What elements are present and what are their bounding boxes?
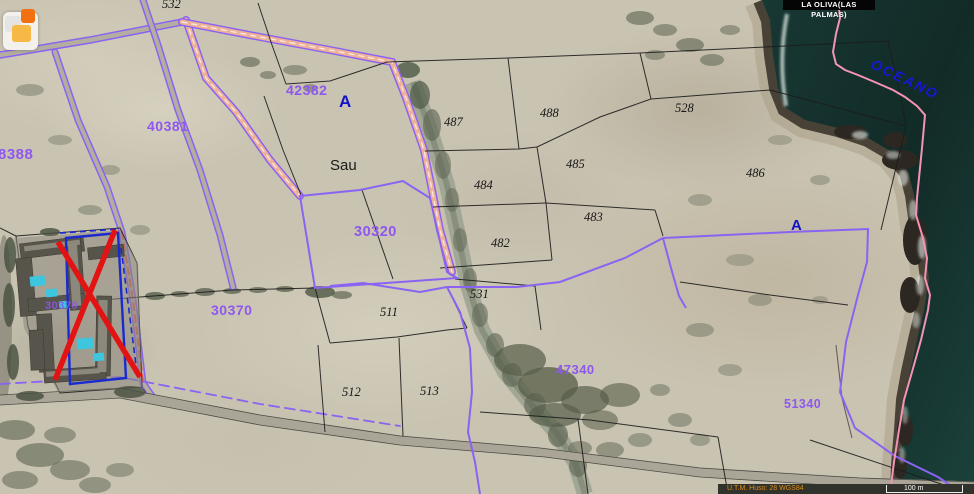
zone-marker-a-upper: A <box>339 92 351 112</box>
parcel-label-485: 485 <box>566 157 585 172</box>
logo-orange-square-icon <box>21 9 35 23</box>
cadastral-label-30370-hotel: 30370 <box>45 300 78 312</box>
parcel-label-483: 483 <box>584 210 603 225</box>
parcel-label-482: 482 <box>491 236 510 251</box>
scale-label: 100 m <box>904 485 923 492</box>
parcel-label-532: 532 <box>162 0 181 12</box>
parcel-label-513: 513 <box>420 384 439 399</box>
projection-label: U.T.M. Huso: 28 WGS84 <box>727 485 804 492</box>
zone-marker-a-right: A <box>791 217 802 234</box>
hotel-buildings <box>3 228 146 401</box>
parcel-label-511: 511 <box>380 305 398 320</box>
parcel-label-486: 486 <box>746 166 765 181</box>
parcel-label-528: 528 <box>675 101 694 116</box>
cadastral-label-40381: 40381 <box>147 118 188 134</box>
parcel-label-488: 488 <box>540 106 559 121</box>
cadastral-label-51340: 51340 <box>784 397 821 411</box>
parcel-label-512: 512 <box>342 385 361 400</box>
scale-bar-line <box>886 492 963 493</box>
status-bar: U.T.M. Huso: 28 WGS84 100 m <box>718 484 974 494</box>
cadastral-label-30320: 30320 <box>354 224 397 240</box>
logo-amber-square-icon <box>12 25 31 42</box>
map-overlay-graphics <box>0 0 974 494</box>
cadastral-label-42382: 42382 <box>286 82 327 98</box>
cadastral-label-30370: 30370 <box>211 302 252 318</box>
parcel-label-484: 484 <box>474 178 493 193</box>
cadastral-label-47340: 47340 <box>556 362 595 377</box>
cadastral-label-8388: 8388 <box>0 146 33 163</box>
map-viewport[interactable]: 532 487 488 528 485 486 484 483 482 531 … <box>0 0 974 494</box>
municipality-bar: LA OLIVA(LAS PALMAS) <box>783 0 875 10</box>
parcel-label-487: 487 <box>444 115 463 130</box>
place-label-sau: Sau <box>330 157 357 174</box>
parcel-label-531: 531 <box>470 287 489 302</box>
scale-bar-right-tick <box>962 485 963 492</box>
app-logo[interactable] <box>3 12 38 50</box>
scale-bar-left-tick <box>886 485 887 492</box>
parcel-lines-purple <box>300 181 963 494</box>
